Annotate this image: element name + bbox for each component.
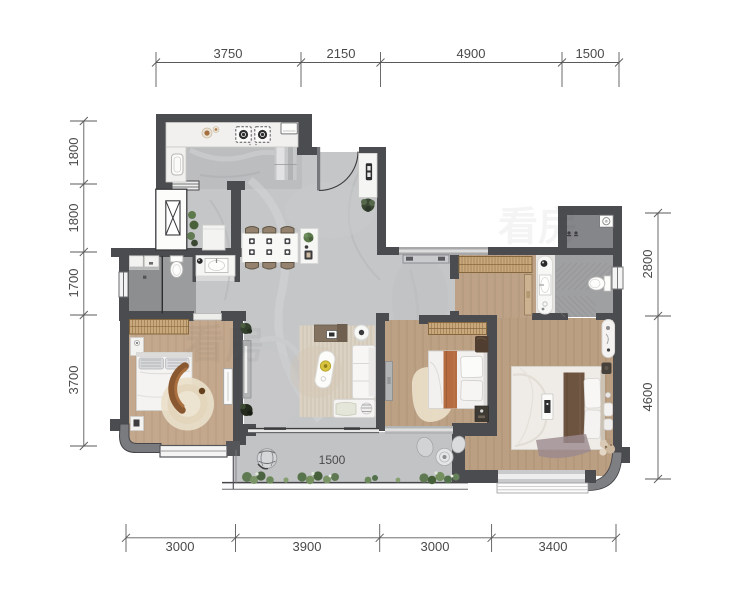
svg-text:2150: 2150: [327, 46, 356, 61]
svg-text:3700: 3700: [66, 366, 81, 395]
svg-text:4600: 4600: [640, 383, 655, 412]
svg-text:看房: 看房: [185, 323, 265, 367]
svg-text:3900: 3900: [293, 539, 322, 554]
svg-text:1500: 1500: [576, 46, 605, 61]
svg-text:看房: 看房: [498, 205, 578, 249]
svg-text:3000: 3000: [166, 539, 195, 554]
svg-text:2800: 2800: [640, 250, 655, 279]
svg-text:3400: 3400: [539, 539, 568, 554]
svg-text:1700: 1700: [66, 269, 81, 298]
svg-text:1800: 1800: [66, 204, 81, 233]
svg-text:3000: 3000: [421, 539, 450, 554]
svg-text:4900: 4900: [457, 46, 486, 61]
svg-text:3750: 3750: [214, 46, 243, 61]
svg-text:1800: 1800: [66, 138, 81, 167]
svg-text:1500: 1500: [319, 453, 346, 467]
